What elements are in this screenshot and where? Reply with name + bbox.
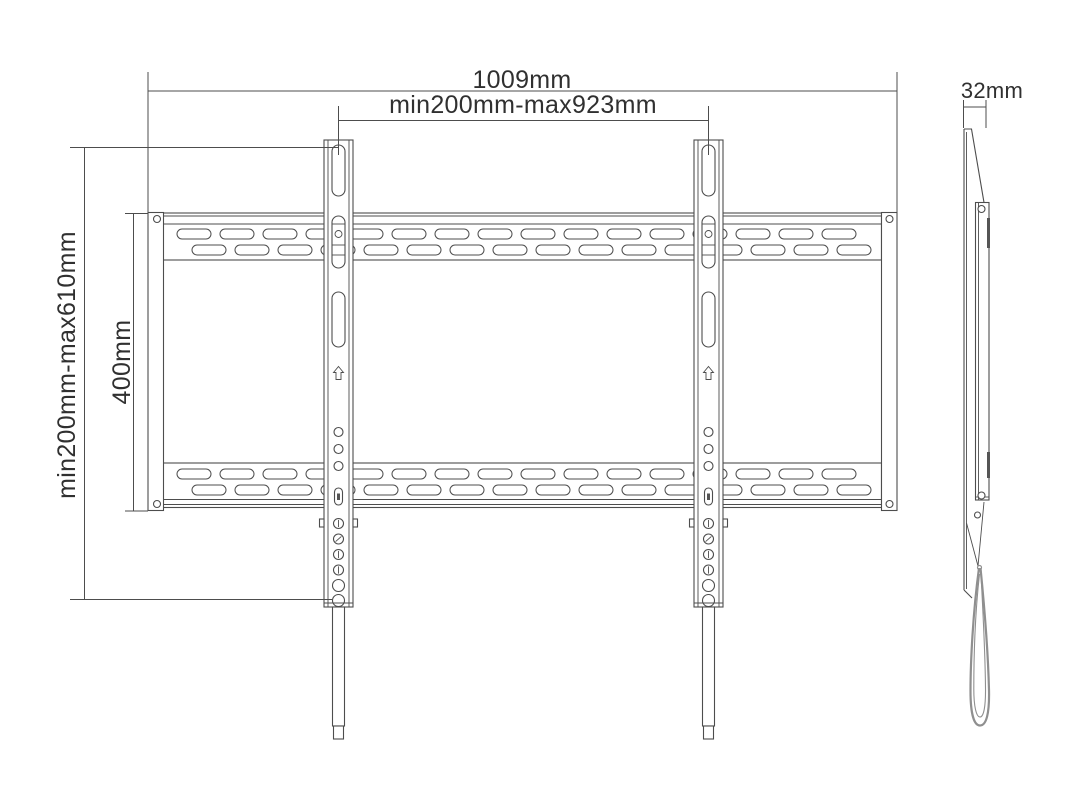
overall-width-label: 1009mm [472, 66, 571, 94]
left-end-plate [148, 213, 164, 511]
tv-bracket-arm-left [320, 140, 358, 739]
top-rail-edge [987, 218, 990, 248]
depth-label: 32mm [961, 78, 1023, 103]
dimension-overall-width: 1009mm [148, 66, 897, 212]
plate-height-label: 400mm [108, 320, 136, 405]
horizontal-hole-range-label: min200mm-max923mm [389, 91, 657, 119]
vertical-hole-range-label: min200mm-max610mm [53, 231, 81, 499]
side-view: 32mm [961, 78, 1023, 726]
bottom-rail-edge [987, 452, 990, 478]
right-end-plate [882, 213, 898, 511]
side-wall-plate-channel [976, 203, 991, 501]
dimension-depth: 32mm [961, 78, 1023, 128]
dimension-horizontal-hole-range: min200mm-max923mm [339, 91, 709, 155]
front-view-wall-plate [148, 213, 897, 511]
dimension-plate-height: 400mm [108, 214, 148, 512]
side-lock-hole [975, 512, 981, 518]
top-rail [163, 213, 882, 260]
bottom-rail [163, 463, 882, 508]
tv-bracket-arm-right [690, 140, 728, 739]
technical-drawing: 1009mm min200mm-max923mm min200mm-max610… [0, 0, 1080, 810]
pull-strap-loop [971, 566, 990, 726]
mount-dimension-diagram: 1009mm min200mm-max923mm min200mm-max610… [0, 0, 1080, 810]
